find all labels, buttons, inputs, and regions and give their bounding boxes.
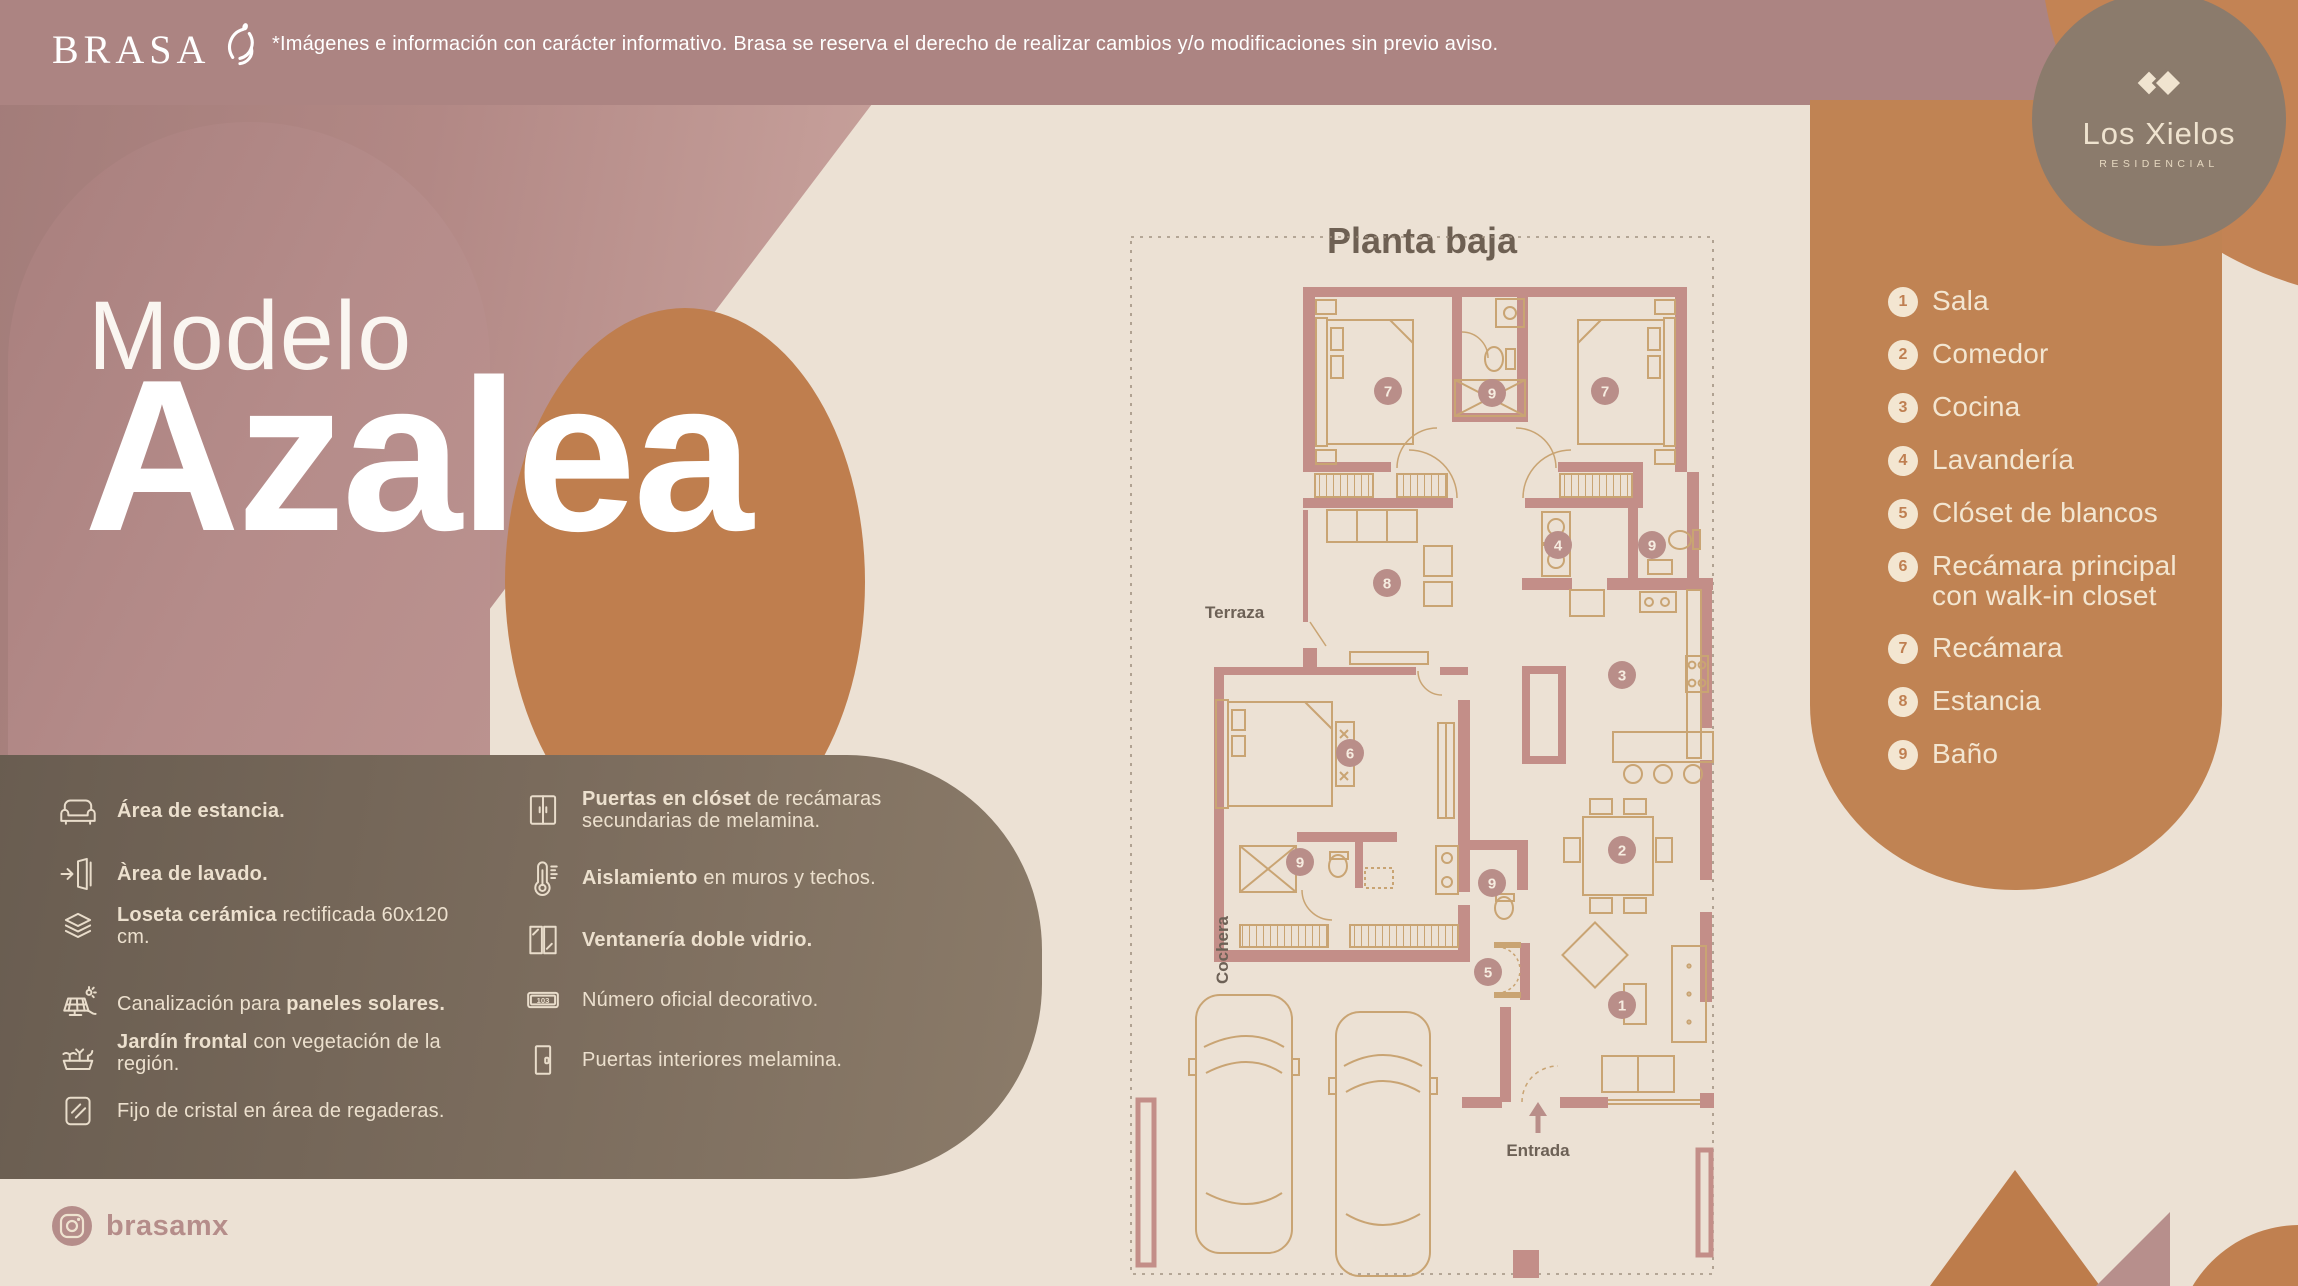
hero-title: Azalea [84,358,750,552]
plan-doors [1302,332,1571,1102]
legend-item-badge: 4 [1888,446,1918,476]
legend-item: 5Clóset de blancos [1888,498,2188,529]
terraza-label: Terraza [1205,603,1265,622]
feature-item: Àrea de lavado. [55,851,485,897]
legend-item-badge: 9 [1888,740,1918,770]
plan-room-badge: 9 [1478,869,1506,897]
decorative-semicircle [2175,1225,2298,1286]
decorative-triangle-mauve [2096,1212,2170,1286]
sofa-icon [55,788,101,834]
door-icon [520,1037,566,1083]
flyer: BRASA *Imágenes e información con caráct… [0,0,2298,1286]
decorative-triangle-orange [1930,1170,2100,1286]
feature-item: Ventanería doble vidrio. [520,917,950,963]
feature-item: Aislamiento en muros y techos. [520,855,950,901]
legend-item-label: Baño [1932,739,1998,769]
legend-item: 1Sala [1888,286,2188,317]
svg-text:2: 2 [1618,842,1626,859]
legend-item: 7Recámara [1888,633,2188,664]
plan-room-badge: 4 [1544,531,1572,559]
legend-item-label: Sala [1932,286,1989,316]
feature-item: Canalización para paneles solares. [55,981,485,1027]
svg-text:8: 8 [1383,575,1391,592]
laundry-door-icon [55,851,101,897]
plan-room-badge: 9 [1286,848,1314,876]
feature-text: Canalización para paneles solares. [117,993,445,1015]
garden-icon [55,1030,101,1076]
plan-room-badge: 2 [1608,836,1636,864]
feature-text: Loseta cerámica rectificada 60x120 cm. [117,904,485,949]
brand-flame-icon [218,20,264,79]
plan-room-badge: 6 [1336,739,1364,767]
tile-layers-icon [55,903,101,949]
legend-item-label: Estancia [1932,686,2041,716]
plan-room-badge: 7 [1591,377,1619,405]
feature-item: Puertas en clóset de recámaras secundari… [520,787,950,833]
instagram-icon[interactable] [52,1206,92,1246]
svg-text:4: 4 [1554,537,1563,554]
legend-item-label: Recámara principal con walk-in closet [1932,551,2188,611]
instagram-handle[interactable]: brasamx [106,1210,229,1243]
svg-text:3: 3 [1618,667,1626,684]
feature-text: Àrea de lavado. [117,863,268,885]
entrada-label: Entrada [1506,1141,1570,1160]
legend-item-badge: 6 [1888,552,1918,582]
brand-wordmark: BRASA [52,26,210,73]
legend-item: 9Baño [1888,739,2188,770]
svg-text:9: 9 [1296,854,1304,871]
svg-text:7: 7 [1384,383,1392,400]
floor-plan: Terraza Cochera Entrada 7978493629951 [1100,228,1760,1286]
feature-item: Puertas interiores melamina. [520,1037,950,1083]
legend-item-label: Lavandería [1932,445,2074,475]
residencial-badge: Los Xielos RESIDENCIAL [2032,0,2286,246]
double-window-icon [520,917,566,963]
svg-text:6: 6 [1346,745,1354,762]
feature-text: Número oficial decorativo. [582,989,818,1011]
plan-furniture [1189,299,1713,1276]
legend-list: 1Sala2Comedor3Cocina4Lavandería5Clóset d… [1888,286,2188,770]
legend-item-badge: 5 [1888,499,1918,529]
instagram-row[interactable]: brasamx [52,1206,229,1246]
entrance-arrow-icon [1529,1102,1547,1133]
svg-text:9: 9 [1488,875,1496,892]
feature-text: Fijo de cristal en área de regaderas. [117,1100,445,1122]
feature-item: Loseta cerámica rectificada 60x120 cm. [55,903,485,949]
closet-doors-icon [520,787,566,833]
feature-text: Ventanería doble vidrio. [582,929,812,951]
solar-panel-icon [55,981,101,1027]
plan-room-badge: 3 [1608,661,1636,689]
thermometer-icon [520,855,566,901]
legend-item-label: Recámara [1932,633,2063,663]
plan-walls [1214,287,1714,1278]
legend-item-badge: 8 [1888,687,1918,717]
feature-text: Puertas en clóset de recámaras secundari… [582,788,950,833]
legend-item: 3Cocina [1888,392,2188,423]
cochera-label: Cochera [1213,915,1232,984]
house-number-icon: 103 [520,977,566,1023]
diamonds-icon [2127,69,2191,110]
car-icon [1189,995,1299,1253]
brand-logo: BRASA [52,20,264,79]
svg-text:5: 5 [1484,964,1492,981]
feature-text: Aislamiento en muros y techos. [582,867,876,889]
plan-room-badge: 8 [1373,569,1401,597]
glass-panel-icon [55,1088,101,1134]
plan-room-badge: 9 [1478,379,1506,407]
feature-text: Puertas interiores melamina. [582,1049,842,1071]
feature-item: 103Número oficial decorativo. [520,977,950,1023]
plan-room-badge: 9 [1638,531,1666,559]
feature-text: Jardín frontal con vegetación de la regi… [117,1031,485,1076]
legend-item-label: Clóset de blancos [1932,498,2158,528]
residencial-subtitle: RESIDENCIAL [2099,158,2219,170]
legend-item-badge: 1 [1888,287,1918,317]
legend-item-badge: 3 [1888,393,1918,423]
svg-text:9: 9 [1488,385,1496,402]
residencial-name: Los Xielos [2082,116,2235,152]
feature-text: Área de estancia. [117,800,285,822]
legend-item-label: Comedor [1932,339,2049,369]
plan-room-badge: 5 [1474,958,1502,986]
plan-room-badge: 1 [1608,991,1636,1019]
disclaimer-text: *Imágenes e información con carácter inf… [272,33,1498,56]
feature-item: Área de estancia. [55,788,485,834]
legend-item: 2Comedor [1888,339,2188,370]
svg-text:1: 1 [1618,997,1626,1014]
feature-item: Fijo de cristal en área de regaderas. [55,1088,485,1134]
svg-text:9: 9 [1648,537,1656,554]
legend-item-badge: 2 [1888,340,1918,370]
legend-item-label: Cocina [1932,392,2020,422]
legend-item-badge: 7 [1888,634,1918,664]
plan-room-badge: 7 [1374,377,1402,405]
svg-text:103: 103 [537,996,550,1005]
legend-item: 8Estancia [1888,686,2188,717]
car-icon [1329,1012,1437,1276]
svg-text:7: 7 [1601,383,1609,400]
legend-item: 4Lavandería [1888,445,2188,476]
legend-item: 6Recámara principal con walk-in closet [1888,551,2188,611]
feature-item: Jardín frontal con vegetación de la regi… [55,1030,485,1076]
